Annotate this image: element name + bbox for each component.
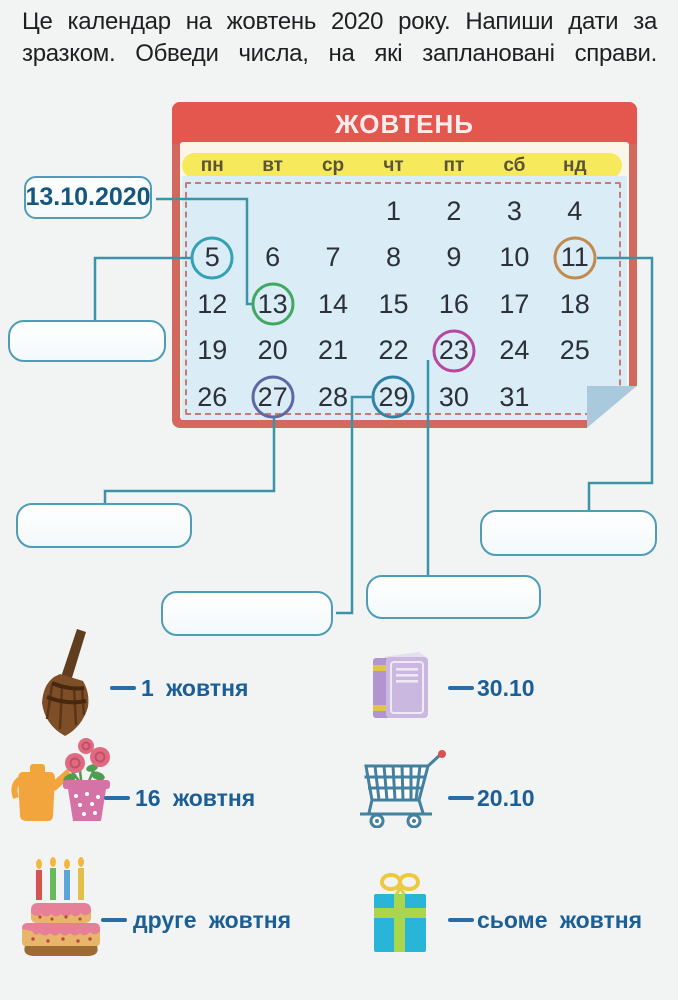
circle-mark-5 — [191, 236, 234, 279]
calendar-day-31[interactable]: 31 — [484, 374, 544, 421]
example-date-value: 13.10.2020 — [25, 183, 150, 212]
day-number: 24 — [499, 335, 529, 366]
day-number: 10 — [499, 242, 529, 273]
connector-line-29 — [336, 397, 373, 613]
calendar-day-3[interactable]: 3 — [484, 188, 544, 235]
calendar-grid: 1234567891011121314151617181920212223242… — [182, 188, 605, 421]
calendar-card: ЖОВТЕНЬ пнвтсрчтптсбнд 12345678910111213… — [172, 102, 637, 428]
calendar-weekdays: пнвтсрчтптсбнд — [182, 153, 605, 178]
legend-label-cake: друге жовтня — [133, 907, 291, 934]
calendar-day-4[interactable]: 4 — [545, 188, 605, 235]
legend-dash — [110, 686, 136, 690]
calendar-day-10[interactable]: 10 — [484, 235, 544, 282]
circle-mark-11 — [553, 236, 596, 279]
calendar-day-27[interactable]: 27 — [242, 374, 302, 421]
calendar-day-6[interactable]: 6 — [242, 235, 302, 282]
calendar-day-5[interactable]: 5 — [182, 235, 242, 282]
day-number: 30 — [439, 382, 469, 413]
calendar-day-empty — [242, 188, 302, 235]
circle-mark-13 — [251, 283, 294, 326]
calendar-day-23[interactable]: 23 — [424, 328, 484, 375]
calendar-day-29[interactable]: 29 — [363, 374, 423, 421]
calendar-day-16[interactable]: 16 — [424, 281, 484, 328]
calendar-day-30[interactable]: 30 — [424, 374, 484, 421]
day-number: 8 — [386, 242, 401, 273]
day-number: 21 — [318, 335, 348, 366]
calendar-day-20[interactable]: 20 — [242, 328, 302, 375]
legend-dash — [101, 918, 127, 922]
answer-box-day-23[interactable] — [366, 575, 541, 619]
worksheet-page: Це календар на жовтень 2020 року. Напиши… — [0, 0, 678, 1000]
calendar-day-2[interactable]: 2 — [424, 188, 484, 235]
calendar-day-12[interactable]: 12 — [182, 281, 242, 328]
answer-box-day-29[interactable] — [161, 591, 333, 636]
answer-box-day-27[interactable] — [16, 503, 192, 548]
legend-dash — [104, 796, 130, 800]
day-number: 28 — [318, 382, 348, 413]
day-number: 18 — [560, 289, 590, 320]
calendar-day-21[interactable]: 21 — [303, 328, 363, 375]
calendar-day-25[interactable]: 25 — [545, 328, 605, 375]
day-number: 16 — [439, 289, 469, 320]
legend-dash — [448, 918, 474, 922]
day-number: 22 — [378, 335, 408, 366]
day-number: 6 — [265, 242, 280, 273]
calendar-day-11[interactable]: 11 — [545, 235, 605, 282]
legend-label-gift: сьоме жовтня — [477, 907, 642, 934]
circle-mark-23 — [432, 329, 475, 372]
calendar-title: ЖОВТЕНЬ — [172, 102, 637, 144]
calendar-day-empty — [182, 188, 242, 235]
day-number: 1 — [386, 196, 401, 227]
calendar-day-18[interactable]: 18 — [545, 281, 605, 328]
day-number: 26 — [197, 382, 227, 413]
day-number: 17 — [499, 289, 529, 320]
legend-dash — [448, 796, 474, 800]
day-number: 12 — [197, 289, 227, 320]
day-number: 20 — [258, 335, 288, 366]
calendar-day-8[interactable]: 8 — [363, 235, 423, 282]
day-number: 19 — [197, 335, 227, 366]
legend-label-broom: 1 жовтня — [141, 675, 248, 702]
task-instructions: Це календар на жовтень 2020 року. Напиши… — [22, 6, 657, 70]
circle-mark-29 — [372, 376, 415, 419]
calendar-day-28[interactable]: 28 — [303, 374, 363, 421]
legend-label-book: 30.10 — [477, 675, 535, 702]
calendar-day-9[interactable]: 9 — [424, 235, 484, 282]
gift-icon — [372, 868, 428, 954]
day-number: 25 — [560, 335, 590, 366]
legend-label-cart: 20.10 — [477, 785, 535, 812]
book-icon — [369, 650, 431, 720]
flowers-icon — [8, 738, 112, 822]
day-number: 31 — [499, 382, 529, 413]
calendar-day-7[interactable]: 7 — [303, 235, 363, 282]
day-number: 3 — [507, 196, 522, 227]
calendar-day-1[interactable]: 1 — [363, 188, 423, 235]
calendar-day-empty — [303, 188, 363, 235]
day-number: 15 — [378, 289, 408, 320]
day-number: 9 — [446, 242, 461, 273]
day-number: 7 — [326, 242, 341, 273]
calendar-day-17[interactable]: 17 — [484, 281, 544, 328]
broom-icon — [30, 627, 104, 739]
answer-box-day-11[interactable] — [480, 510, 657, 556]
day-number: 2 — [446, 196, 461, 227]
legend-dash — [448, 686, 474, 690]
answer-box-day-5[interactable] — [8, 320, 166, 362]
example-date-box: 13.10.2020 — [24, 176, 152, 219]
calendar-day-22[interactable]: 22 — [363, 328, 423, 375]
cart-icon — [356, 750, 448, 828]
day-number: 14 — [318, 289, 348, 320]
page-curl — [587, 386, 637, 428]
calendar-day-15[interactable]: 15 — [363, 281, 423, 328]
connector-line-27 — [105, 418, 274, 504]
calendar-day-13[interactable]: 13 — [242, 281, 302, 328]
cake-icon — [18, 853, 106, 963]
calendar-day-19[interactable]: 19 — [182, 328, 242, 375]
calendar-day-14[interactable]: 14 — [303, 281, 363, 328]
calendar-day-26[interactable]: 26 — [182, 374, 242, 421]
calendar-day-24[interactable]: 24 — [484, 328, 544, 375]
day-number: 4 — [567, 196, 582, 227]
legend-label-flowers: 16 жовтня — [135, 785, 255, 812]
circle-mark-27 — [251, 376, 294, 419]
